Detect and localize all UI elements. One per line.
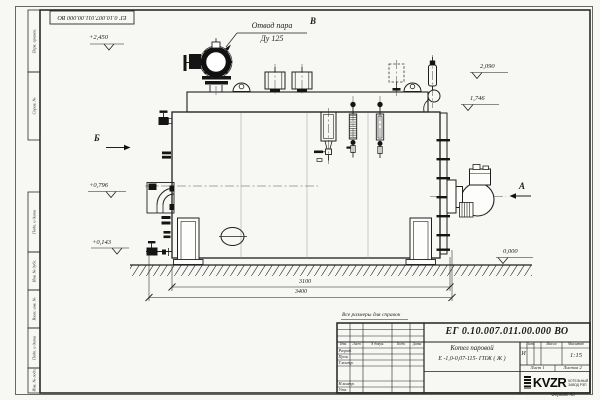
view-label-b: Б [94,134,100,143]
safety-valve-boxes [265,67,312,92]
elevation-marks [88,44,533,264]
title-doc-number: ЕГ 0.10.007.011.00.000 ВО [424,327,590,337]
margin-label-inv-dubl: Инв. № дубл. [32,260,37,283]
view-label-a: А [519,182,525,191]
sheets-info: Листов 2 [555,366,590,371]
format-note: Формат А3 [536,394,590,399]
burner [447,165,494,218]
reference-note: Все размеры для справок [342,313,400,319]
col-header-podp: Подп. [392,343,410,347]
lit-value: И [520,351,527,357]
callout-steam-outlet-line2: Ду 125 [237,35,307,43]
top-rotated-stamp: ЕГ 0.10.007.011.00.000 ВО [50,11,134,24]
margin-label-podp-data-2: Подп. и дата [32,336,37,360]
row-label-nkontr: Н.контр. [339,382,355,386]
title-product-name: Котел паровой [424,346,520,353]
upper-drum [187,92,428,112]
boiler-body [172,112,440,258]
row-label-razrab: Разраб. [339,349,352,353]
elevation-0000: 0,000 [503,249,518,256]
dimension-3400: 3400 [283,289,319,295]
ground-line [130,265,532,276]
kvzr-logo-bars-icon [524,376,531,389]
sheet-info: Лист 1 [520,366,555,371]
kvzr-logo-subtitle: КОТЕЛЬНЫЙ ЗАВОД РЭП [568,379,588,387]
row-label-prov: Пров. [339,355,349,359]
kvzr-logo-text: KVZR [533,376,566,389]
margin-label-inv-podl: Инв. № подл. [32,368,37,391]
blueprint-page: ЕГ 0.10.007.011.00.000 ВО Перв. примен. … [0,0,600,400]
row-label-tkontr: Т.контр. [339,361,354,365]
siphon-valve [424,57,440,112]
header-scale: Масштаб [562,343,590,347]
drawing-linework [0,0,600,400]
elevation-2450: +2,450 [89,35,108,42]
title-designation: Е -1,0-0,07-115- ГПЖ ( Ж ) [424,357,520,363]
col-header-ndokum: N докум. [363,343,392,347]
callout-steam-outlet-line1: Отвод пара [237,22,307,30]
water-level-column [314,112,336,162]
header-lit: Лит. [520,343,541,347]
kvzr-logo: KVZR КОТЕЛЬНЫЙ ЗАВОД РЭП [523,374,589,391]
scale-value: 1:15 [562,353,590,360]
elevation-1746: 1,746 [470,96,485,103]
steam-valve [184,39,233,93]
left-fittings [146,111,174,257]
col-header-list: Лист [350,343,363,347]
margin-label-vzam-inv: Взам. инв. № [32,297,37,320]
gauge-glasses [347,102,384,158]
elevation-0143: +0,143 [92,240,111,247]
margin-label-sprav-no: Справ. № [32,98,37,115]
elevation-0796: +0,796 [89,183,108,190]
view-label-v: В [310,17,316,26]
margin-label-podp-data-1: Подп. и дата [32,210,37,234]
row-label-utv: Утв. [339,388,348,392]
header-mass: Масса [541,343,562,347]
margin-label-perv-primen: Перв. примен. [32,29,37,54]
elevation-2090: 2,090 [480,64,495,71]
dimension-3100: 3100 [290,279,320,285]
col-header-data: Дата [410,343,424,347]
col-header-izm: Изм. [337,343,350,347]
manhole [219,228,247,246]
